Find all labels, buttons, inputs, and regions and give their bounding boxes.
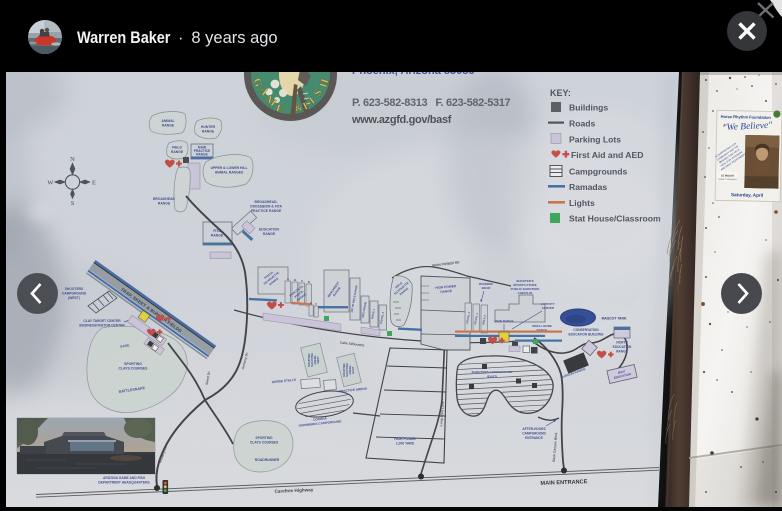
svg-text:Horse Rhythm Foundation: Horse Rhythm Foundation bbox=[721, 114, 772, 120]
svg-text:GUEST SPEAKER: GUEST SPEAKER bbox=[718, 178, 737, 181]
svg-text:Saturday, April: Saturday, April bbox=[731, 192, 763, 198]
svg-text:LE MOUTE: LE MOUTE bbox=[721, 173, 735, 177]
